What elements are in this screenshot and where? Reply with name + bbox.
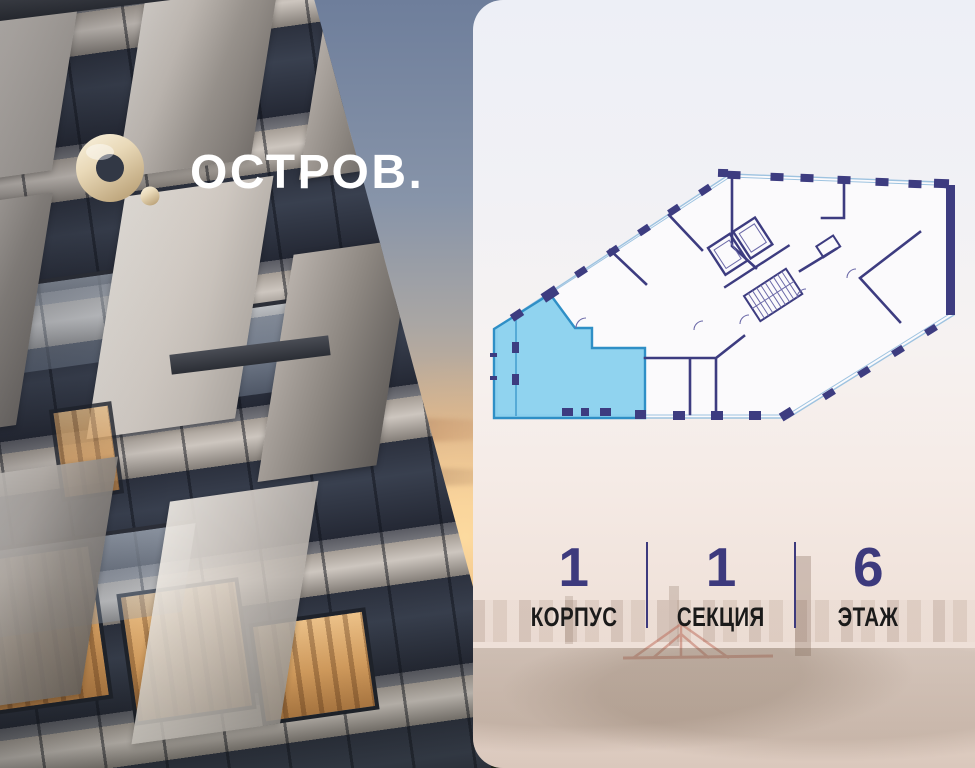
building-photo: ОСТРОВ. xyxy=(0,0,520,768)
sekcia-label: СЕКЦИЯ xyxy=(677,602,765,633)
backdrop-trees xyxy=(473,648,975,768)
unit-info: 1 КОРПУС 1 СЕКЦИЯ 6 ЭТАЖ xyxy=(501,540,941,633)
floor-plan xyxy=(488,158,963,450)
window-pier xyxy=(562,408,573,416)
ostrov-ring-logo-icon xyxy=(74,130,170,212)
window-pier xyxy=(581,408,589,416)
brand: ОСТРОВ. xyxy=(74,130,424,212)
plan-panel: 1 КОРПУС 1 СЕКЦИЯ 6 ЭТАЖ xyxy=(473,0,975,768)
balcony-door xyxy=(512,374,519,385)
sekcia-value: 1 xyxy=(648,540,793,595)
etazh-value: 6 xyxy=(796,540,941,595)
korpus-label: КОРПУС xyxy=(530,602,617,633)
brand-name: ОСТРОВ. xyxy=(190,145,424,200)
listing-card: ОСТРОВ. xyxy=(0,0,975,768)
window-pier xyxy=(490,376,497,380)
info-korpus: 1 КОРПУС xyxy=(501,540,646,633)
window-pier xyxy=(490,353,497,357)
window-pier xyxy=(600,408,611,416)
balcony-door xyxy=(512,342,519,353)
right-wall xyxy=(946,185,955,315)
info-etazh: 6 ЭТАЖ xyxy=(796,540,941,633)
korpus-value: 1 xyxy=(501,540,646,595)
etazh-label: ЭТАЖ xyxy=(838,602,899,633)
info-sekcia: 1 СЕКЦИЯ xyxy=(648,540,793,633)
